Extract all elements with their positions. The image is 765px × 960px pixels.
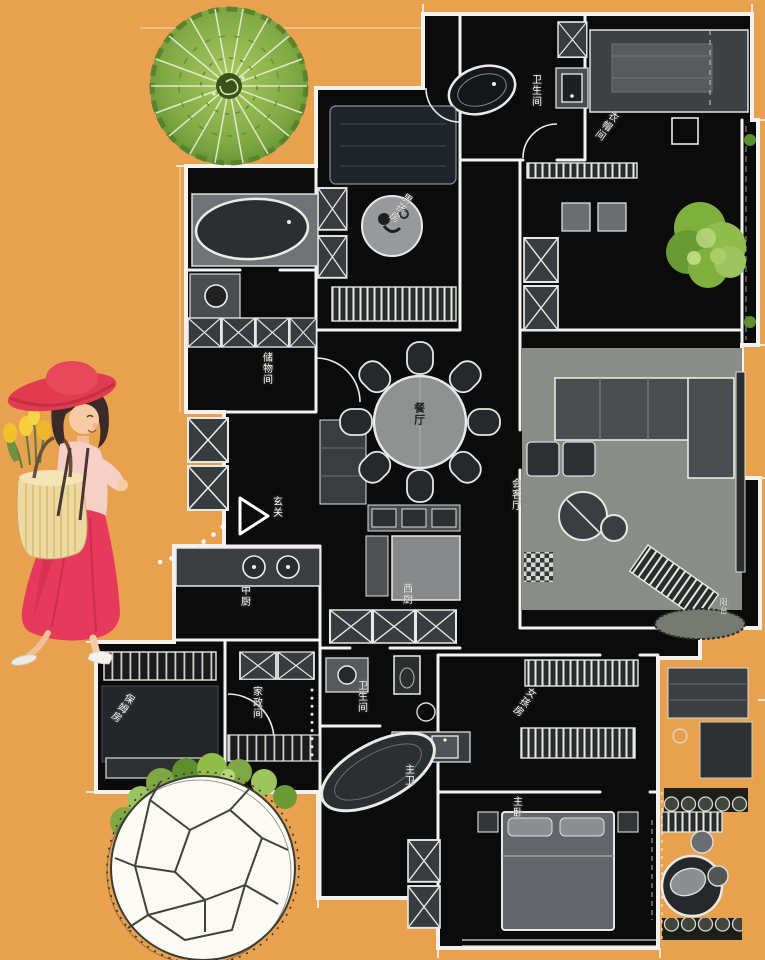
island <box>392 536 460 600</box>
nightstand <box>478 812 498 832</box>
chinese-kitchen <box>176 548 320 586</box>
pillow <box>508 818 552 836</box>
plant-row <box>664 788 748 812</box>
drying-rack <box>228 735 320 761</box>
hand <box>116 479 128 491</box>
grid-rug <box>524 552 554 582</box>
railing <box>525 660 638 686</box>
basin <box>338 666 356 684</box>
canopy <box>111 776 295 960</box>
face <box>69 404 99 434</box>
plant-row <box>662 918 742 940</box>
plant-bed <box>655 609 745 639</box>
chaise <box>688 378 734 478</box>
tv-console <box>736 372 745 572</box>
pillow <box>560 818 604 836</box>
nightstand <box>618 812 638 832</box>
stool <box>691 831 713 853</box>
hatch-row <box>330 610 456 643</box>
floor-mat <box>102 686 218 762</box>
railing <box>527 163 637 178</box>
mat <box>668 668 748 718</box>
round-table <box>362 196 422 256</box>
sofa <box>555 378 695 440</box>
bag <box>17 473 87 558</box>
wardrobe-hatch-row <box>188 318 316 347</box>
dining-set <box>340 342 500 502</box>
floor-plan-scene <box>0 0 765 960</box>
rack-row <box>104 652 216 680</box>
appliance-column <box>366 536 388 596</box>
rug-bed <box>330 106 456 184</box>
railing <box>521 728 635 758</box>
shelf-row <box>332 287 456 321</box>
illustration-canvas: 卫生间 衣帽间 男孩房 储物间 餐厅 玄关 会客厅 中厨 西厨 家政间 卫生间 … <box>0 0 765 960</box>
planter <box>700 722 752 778</box>
fan-tree <box>150 7 308 165</box>
shaft-hatch <box>558 22 587 57</box>
slat-bench <box>662 812 722 832</box>
basin <box>205 285 227 307</box>
